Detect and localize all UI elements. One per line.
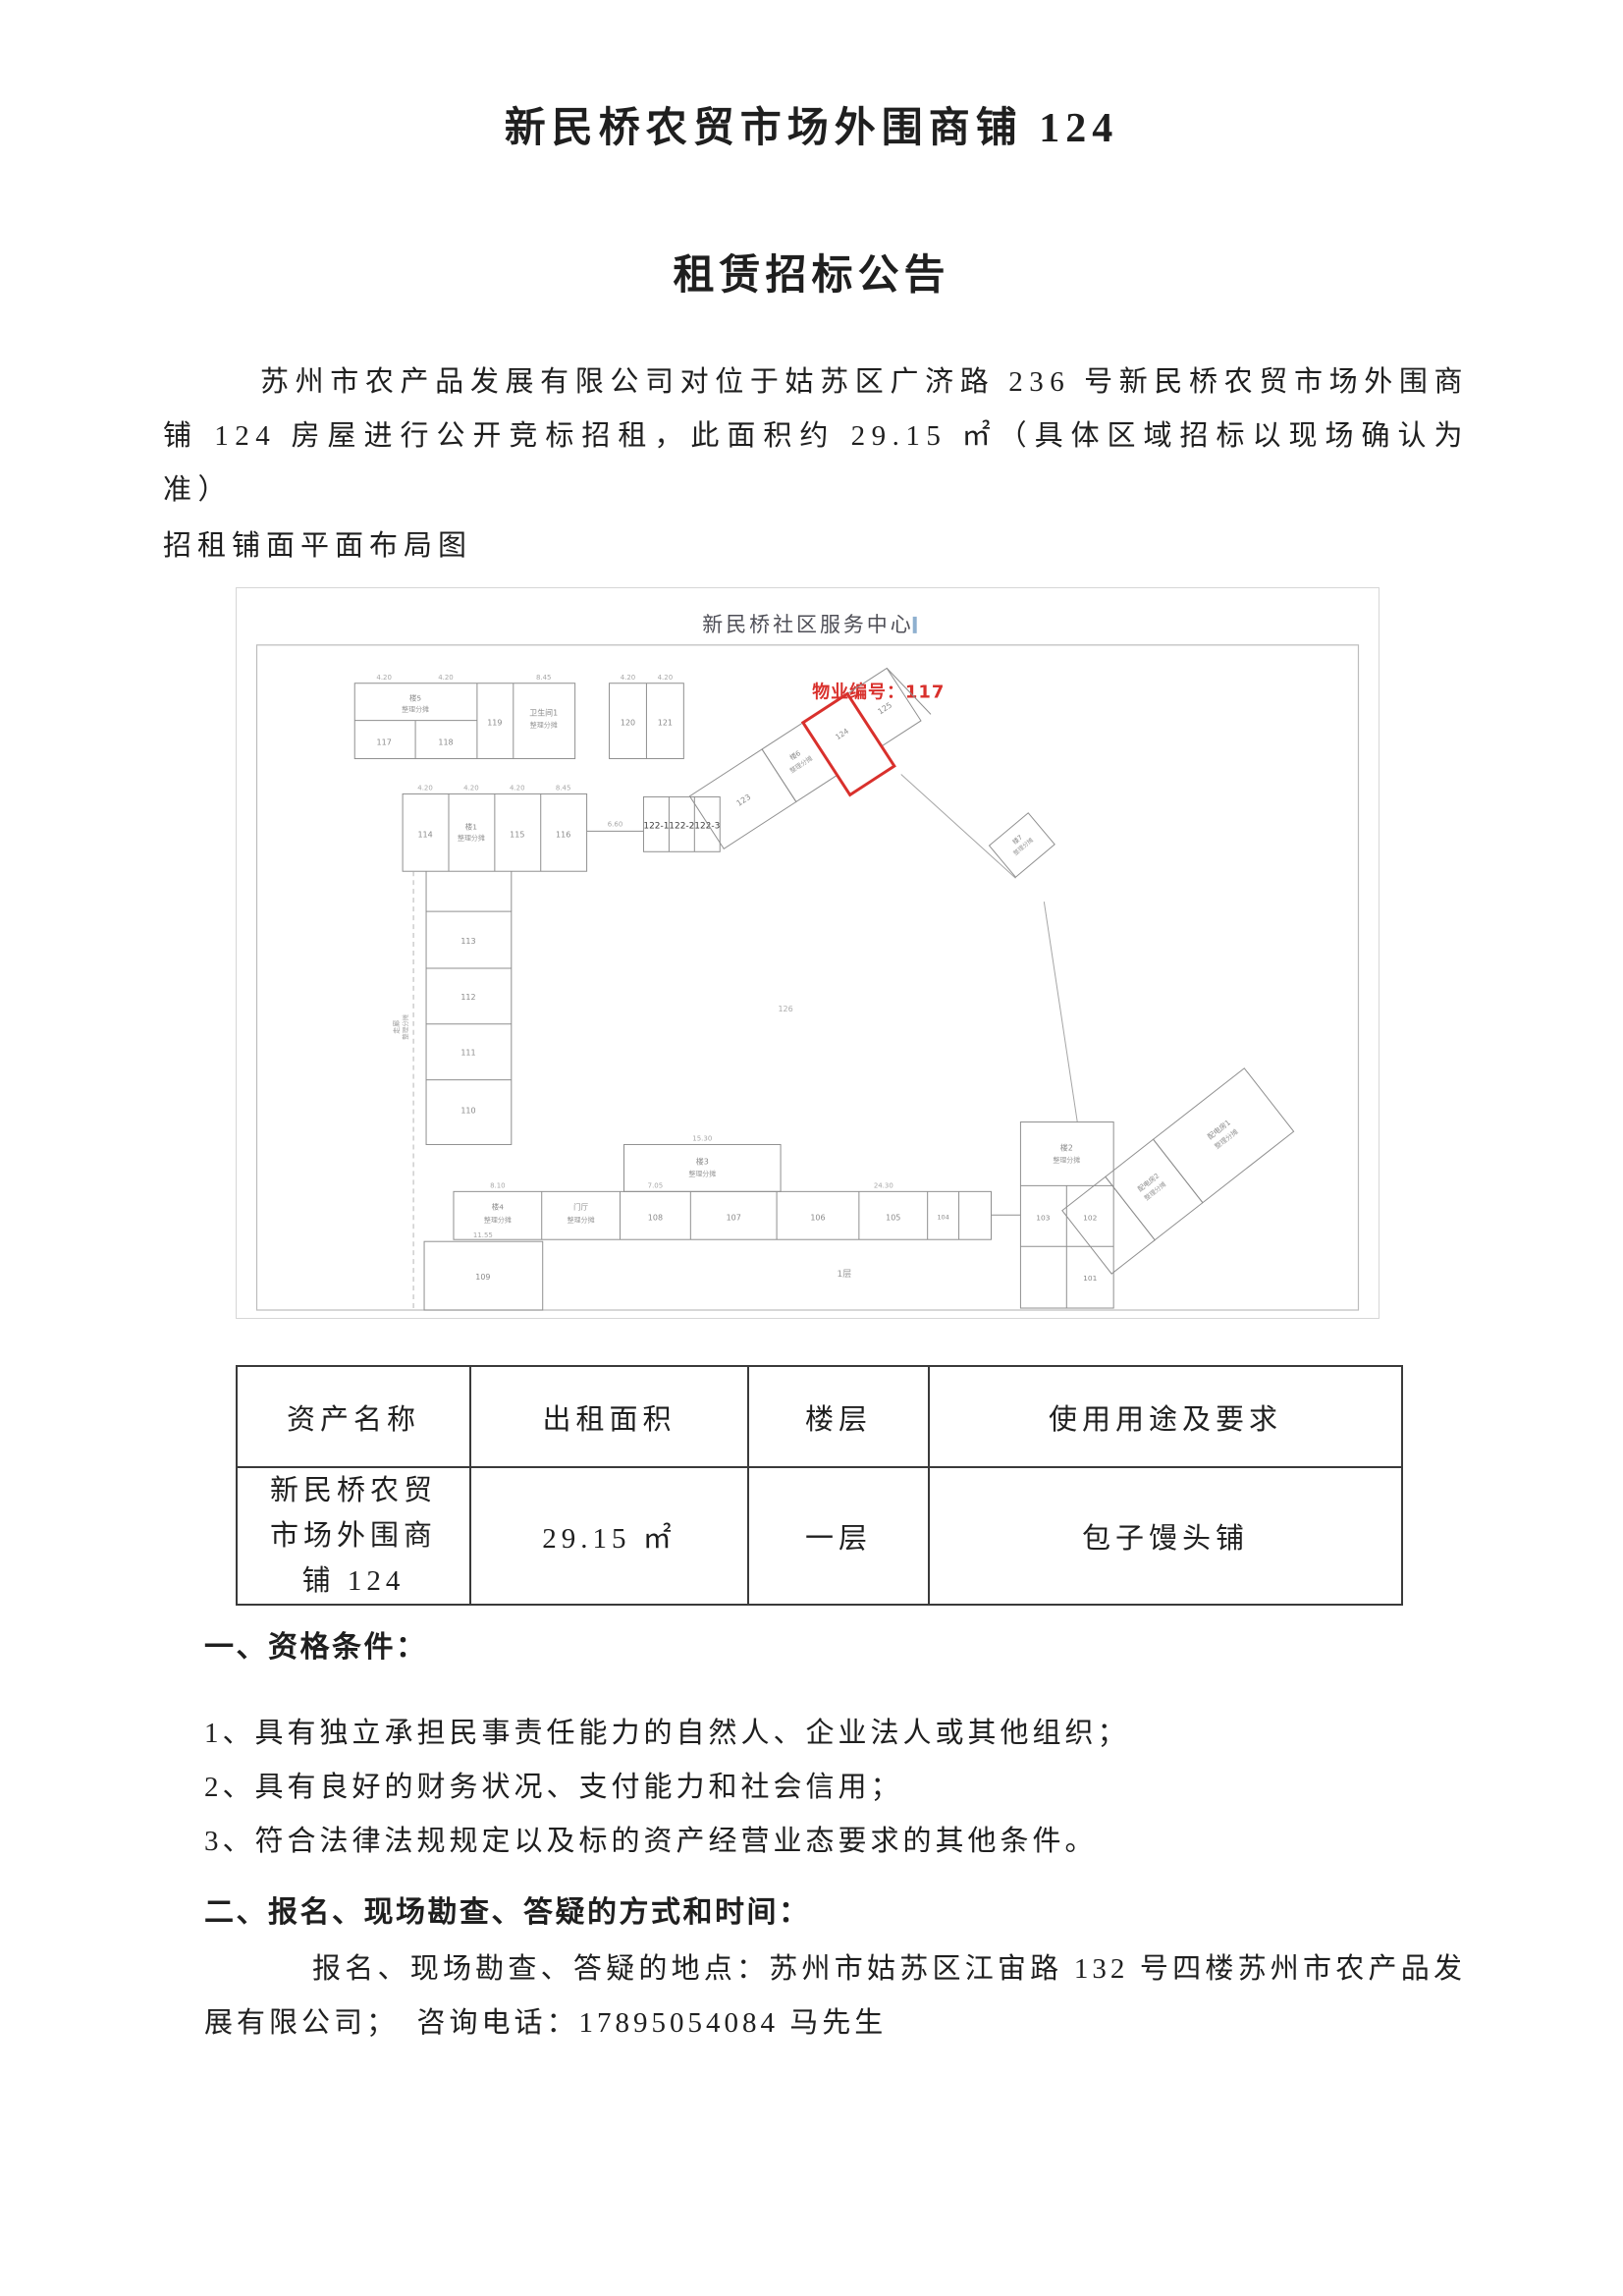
room-label-120: 120 <box>621 719 635 728</box>
table-header-row: 资产名称 出租面积 楼层 使用用途及要求 <box>237 1366 1402 1467</box>
block-b7: 楼7 整理分摊 <box>990 813 1055 877</box>
right-wing: 配电房2 整理分摊 配电房1 整理分摊 <box>1062 1068 1294 1274</box>
room-label-112: 112 <box>460 993 475 1002</box>
floor-plan-image: 新民桥社区服务中心 物业编号：117 楼5 整理分摊 117 118 119 卫… <box>236 587 1380 1319</box>
room-label-121: 121 <box>658 719 673 728</box>
room-label-102: 102 <box>1083 1213 1097 1222</box>
condition-item-2: 2、具有良好的财务状况、支付能力和社会信用； <box>204 1761 1471 1815</box>
room-label-108: 108 <box>648 1213 663 1222</box>
dim-label: 8.45 <box>556 784 571 792</box>
announcement-page: 新民桥农贸市场外围商铺 124 租赁招标公告 苏州市农产品发展有限公司对位于姑苏… <box>0 0 1623 2296</box>
dim-label: 8.10 <box>490 1181 506 1189</box>
header-asset-name: 资产名称 <box>237 1366 470 1467</box>
connector-line-1 <box>901 774 1016 878</box>
room-label-b3: 楼3 <box>696 1156 709 1166</box>
floor-label: 1层 <box>838 1269 852 1280</box>
room-label-116: 116 <box>556 830 570 839</box>
left-column <box>426 871 512 1144</box>
room-label-101: 101 <box>1083 1274 1098 1283</box>
header-usage: 使用用途及要求 <box>929 1366 1402 1467</box>
share-label: 整理分摊 <box>401 1013 409 1039</box>
asset-table: 资产名称 出租面积 楼层 使用用途及要求 新民桥农贸市场外围商铺 124 29.… <box>236 1365 1403 1606</box>
room-label-123: 123 <box>735 793 753 808</box>
dim-label: 4.20 <box>376 674 392 682</box>
cell-rent-area: 29.15 ㎡ <box>470 1467 748 1605</box>
dim-label: 7.05 <box>648 1181 664 1189</box>
share-label: 整理分摊 <box>530 721 558 730</box>
dim-label: 4.20 <box>510 784 525 792</box>
share-label: 整理分摊 <box>402 705 429 714</box>
room-label-hall: 门厅 <box>573 1202 588 1211</box>
room-label-117: 117 <box>377 738 392 747</box>
cell-asset-name: 新民桥农贸市场外围商铺 124 <box>237 1467 470 1605</box>
cell-floor: 一层 <box>748 1467 929 1605</box>
room-label-109: 109 <box>475 1273 490 1282</box>
share-label: 整理分摊 <box>688 1169 716 1177</box>
share-label: 整理分摊 <box>484 1215 512 1224</box>
room-label-103: 103 <box>1036 1213 1051 1222</box>
dim-label: 4.20 <box>621 674 636 682</box>
cell-usage: 包子馒头铺 <box>929 1467 1402 1605</box>
room-label-113: 113 <box>460 937 475 946</box>
section1-items: 1、具有独立承担民事责任能力的自然人、企业法人或其他组织； 2、具有良好的财务状… <box>204 1707 1471 1869</box>
dim-label: 4.20 <box>417 784 433 792</box>
room-label-114: 114 <box>417 830 432 839</box>
room-label-125: 125 <box>876 701 893 717</box>
share-label: 整理分摊 <box>458 833 485 842</box>
dim-label: 4.20 <box>463 784 479 792</box>
section2-paragraph: 报名、现场勘查、答疑的地点：苏州市姑苏区江宙路 132 号四楼苏州市农产品发展有… <box>204 1942 1466 2050</box>
dim-label: 24.30 <box>874 1181 893 1189</box>
room-label-126: 126 <box>778 1005 792 1013</box>
room-label-106: 106 <box>810 1213 825 1222</box>
dim-label: 6.60 <box>608 820 623 828</box>
dim-label: 4.20 <box>658 674 674 682</box>
connector-line-2 <box>1044 902 1077 1121</box>
dim-label: 15.30 <box>692 1134 712 1142</box>
plan-title-mark <box>913 617 917 633</box>
header-floor: 楼层 <box>748 1366 929 1467</box>
floor-plan-svg: 新民桥社区服务中心 物业编号：117 楼5 整理分摊 117 118 119 卫… <box>237 588 1379 1318</box>
page-subtitle: 租赁招标公告 <box>0 242 1623 301</box>
condition-item-1: 1、具有独立承担民事责任能力的自然人、企业法人或其他组织； <box>204 1707 1471 1761</box>
dim-label: 11.55 <box>473 1231 493 1239</box>
condition-item-3: 3、符合法律法规规定以及标的资产经营业态要求的其他条件。 <box>204 1815 1471 1869</box>
room-label-b5: 楼5 <box>409 693 421 703</box>
room-label-corridor: 走廊 <box>392 1020 401 1034</box>
room-label-111: 111 <box>460 1049 475 1058</box>
room-label-104: 104 <box>937 1213 948 1221</box>
room-label-115: 115 <box>510 830 524 839</box>
room-label-119: 119 <box>487 719 502 728</box>
room-label-110: 110 <box>460 1107 475 1116</box>
table-row: 新民桥农贸市场外围商铺 124 29.15 ㎡ 一层 包子馒头铺 <box>237 1467 1402 1605</box>
room-label-toilet: 卫生间1 <box>529 708 558 718</box>
plan-caption: 招租铺面平面布局图 <box>163 522 472 564</box>
dim-label: 8.45 <box>536 674 552 682</box>
room-label-b1: 楼1 <box>465 821 477 831</box>
share-label: 整理分摊 <box>1053 1155 1080 1164</box>
share-label: 整理分摊 <box>568 1215 595 1224</box>
dim-label: 4.20 <box>438 674 454 682</box>
section1-heading: 一、资格条件： <box>204 1622 428 1666</box>
section2-heading: 二、报名、现场勘查、答疑的方式和时间： <box>204 1887 811 1931</box>
room-label-122-1: 122-1 <box>643 821 669 831</box>
room-label-118: 118 <box>438 738 453 747</box>
header-rent-area: 出租面积 <box>470 1366 748 1467</box>
room-label-124: 124 <box>834 727 850 741</box>
plan-title: 新民桥社区服务中心 <box>702 613 913 636</box>
room-label-107: 107 <box>727 1213 741 1222</box>
room-label-105: 105 <box>886 1213 900 1222</box>
property-number-label: 物业编号：117 <box>812 682 945 703</box>
room-label-b2: 楼2 <box>1060 1142 1073 1152</box>
room-label-b4: 楼4 <box>492 1201 504 1211</box>
room-label-122-2: 122-2 <box>669 821 694 831</box>
intro-paragraph: 苏州市农产品发展有限公司对位于姑苏区广济路 236 号新民桥农贸市场外围商铺 1… <box>163 355 1469 518</box>
page-title: 新民桥农贸市场外围商铺 124 <box>0 94 1623 154</box>
